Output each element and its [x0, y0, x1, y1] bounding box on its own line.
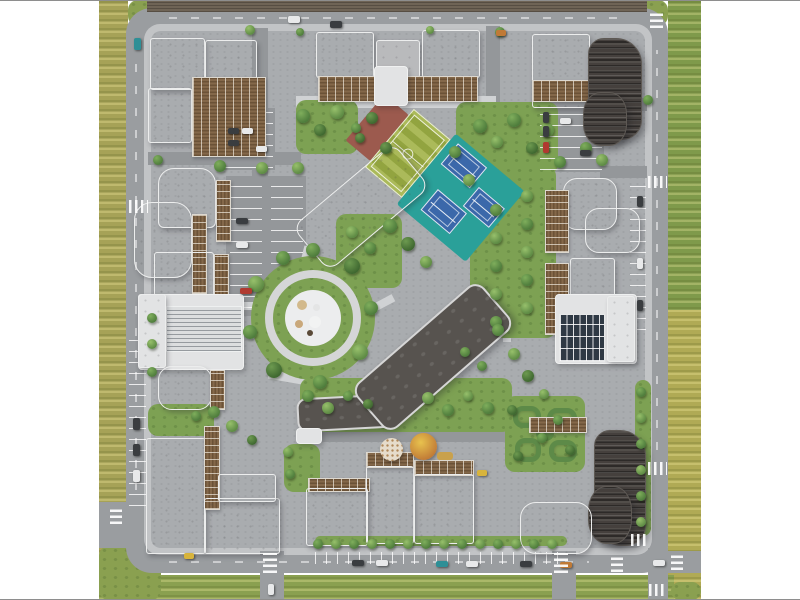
field-right-upper — [668, 0, 701, 330]
playground-dome-orange — [410, 433, 437, 460]
skylight-roof — [166, 306, 242, 352]
car — [496, 30, 506, 36]
tree — [322, 402, 334, 414]
car — [560, 118, 571, 124]
tree — [330, 105, 344, 119]
tree — [636, 387, 646, 397]
tree — [349, 539, 359, 549]
central-plaza — [251, 256, 375, 380]
car — [184, 553, 194, 559]
tree — [283, 447, 293, 457]
building-roof — [154, 252, 214, 298]
building-roof — [607, 296, 635, 362]
tree — [426, 26, 434, 34]
car — [236, 242, 248, 248]
site-plan-content — [99, 0, 701, 600]
tree — [208, 406, 220, 418]
tree — [313, 375, 327, 389]
tree — [521, 190, 533, 202]
building-roof — [316, 32, 374, 78]
car — [242, 128, 253, 134]
tree — [521, 218, 533, 230]
tree — [243, 325, 257, 339]
tree — [226, 420, 238, 432]
car — [637, 196, 643, 207]
tree — [439, 539, 449, 549]
car — [133, 418, 140, 430]
tree — [296, 109, 310, 123]
plaza-feature — [297, 300, 307, 310]
tree — [442, 404, 454, 416]
building-roof-round — [585, 208, 640, 253]
tree — [636, 517, 646, 527]
tree — [490, 260, 502, 272]
playground-equipment — [437, 452, 453, 460]
building-white-block — [374, 66, 408, 106]
crosswalk — [110, 506, 122, 524]
lawn-bottom — [99, 575, 674, 600]
tree — [508, 348, 520, 360]
tree — [314, 124, 326, 136]
inner-drive — [600, 166, 647, 178]
crosswalk — [554, 553, 568, 573]
building-roof — [422, 30, 480, 78]
solar-panel-roof — [559, 314, 605, 362]
tree — [521, 274, 533, 286]
tree — [355, 133, 365, 143]
crosswalk — [611, 556, 623, 572]
tree — [247, 435, 257, 445]
crosswalk — [129, 200, 148, 213]
tree — [507, 113, 521, 127]
tree — [554, 156, 566, 168]
car — [637, 300, 643, 311]
crosswalk — [263, 553, 277, 573]
tree — [490, 232, 502, 244]
tree — [296, 28, 304, 36]
tree — [276, 251, 290, 265]
tree — [636, 439, 646, 449]
tree — [344, 258, 360, 274]
tree — [403, 539, 413, 549]
car — [466, 561, 478, 567]
car — [256, 146, 267, 152]
building-roof — [148, 88, 192, 143]
crosswalk — [671, 554, 683, 570]
tree — [473, 119, 487, 133]
tree — [302, 390, 314, 402]
car — [133, 470, 140, 482]
crosswalk — [649, 584, 667, 596]
tree — [420, 256, 432, 268]
car — [134, 38, 141, 50]
building-roof — [414, 474, 474, 544]
tree — [460, 347, 470, 357]
lane-dashes-right — [656, 50, 658, 450]
building-wavy-lobe — [583, 92, 627, 146]
tree — [521, 302, 533, 314]
car — [543, 126, 549, 137]
tree — [245, 25, 255, 35]
tree — [256, 162, 268, 174]
tree — [285, 469, 295, 479]
tree — [522, 370, 534, 382]
car — [580, 150, 591, 156]
plowed-field-top — [147, 0, 647, 12]
building-roof — [205, 40, 257, 82]
tree — [346, 226, 358, 238]
tree — [352, 344, 368, 360]
tree — [153, 155, 163, 165]
crosswalk — [648, 176, 667, 188]
tree — [507, 405, 517, 415]
tree — [147, 313, 157, 323]
plaza-feature — [309, 316, 321, 328]
tennis-court — [421, 189, 467, 234]
car — [268, 584, 274, 595]
building-roof — [306, 488, 368, 546]
tree — [147, 367, 157, 377]
tree — [306, 243, 320, 257]
image-frame-line-top — [0, 0, 800, 1]
building-white-canopy — [296, 428, 322, 444]
building-roof — [366, 466, 414, 544]
aerial-site-plan-image — [0, 0, 800, 600]
tree — [521, 246, 533, 258]
tree — [364, 242, 376, 254]
plaza-feature — [307, 330, 313, 336]
car — [477, 470, 487, 476]
tree — [547, 539, 557, 549]
tree — [482, 402, 494, 414]
car — [520, 561, 532, 567]
tree — [331, 539, 341, 549]
building-roof — [146, 438, 206, 554]
car — [133, 444, 140, 456]
tree — [343, 391, 353, 401]
tree — [636, 413, 646, 423]
tree — [214, 160, 226, 172]
car — [436, 561, 448, 567]
playground-dome-dotted — [380, 438, 403, 461]
building-wood-facade — [532, 80, 590, 102]
tree — [380, 142, 392, 154]
tree — [363, 399, 373, 409]
tree — [490, 204, 502, 216]
car — [376, 560, 388, 566]
tree — [351, 123, 361, 133]
tree — [492, 324, 504, 336]
tree — [385, 539, 395, 549]
tree — [421, 539, 431, 549]
crosswalk — [648, 462, 667, 475]
crosswalk — [631, 534, 647, 546]
car — [543, 142, 549, 153]
building-roof — [204, 498, 280, 554]
tree — [401, 237, 415, 251]
inner-drive — [486, 26, 500, 104]
tree — [463, 174, 475, 186]
car — [240, 288, 252, 294]
tree — [490, 288, 502, 300]
tree — [643, 95, 653, 105]
tree — [383, 219, 397, 233]
building-wood-facade — [545, 190, 569, 253]
tree — [313, 539, 323, 549]
building-roof-round — [158, 366, 212, 410]
tree — [596, 154, 608, 166]
car — [352, 560, 364, 566]
tree — [539, 389, 549, 399]
tree — [636, 465, 646, 475]
plaza-feature — [313, 304, 320, 311]
tree — [511, 539, 521, 549]
car — [288, 16, 300, 23]
building-roof — [218, 474, 276, 502]
car — [228, 128, 239, 134]
tree — [513, 451, 523, 461]
tree — [565, 445, 575, 455]
lawn-corner-br — [671, 582, 701, 600]
building-wavy-lobe — [588, 486, 632, 544]
lane-dashes-top — [169, 17, 629, 19]
tree — [491, 136, 503, 148]
car — [330, 21, 342, 28]
tree — [457, 539, 467, 549]
building-wood-facade — [210, 370, 225, 410]
crosswalk — [650, 11, 663, 28]
car — [236, 218, 248, 224]
tree — [147, 339, 157, 349]
building-roof — [570, 258, 615, 298]
building-wood-facade — [216, 180, 231, 242]
tree — [364, 301, 378, 315]
tree — [366, 112, 378, 124]
building-roof — [138, 294, 166, 368]
tree — [526, 142, 538, 154]
tree — [449, 146, 461, 158]
tree — [463, 391, 473, 401]
car — [637, 258, 643, 269]
tree — [191, 411, 201, 421]
tree — [367, 539, 377, 549]
tree — [475, 539, 485, 549]
plaza-feature — [295, 320, 303, 328]
car — [228, 140, 239, 146]
tree — [636, 491, 646, 501]
tree — [493, 539, 503, 549]
tree — [422, 392, 434, 404]
car — [653, 560, 665, 566]
car — [543, 112, 549, 123]
tree — [529, 539, 539, 549]
tree — [553, 415, 563, 425]
tree — [292, 162, 304, 174]
tree — [537, 433, 547, 443]
tree — [477, 361, 487, 371]
tree — [266, 362, 282, 378]
